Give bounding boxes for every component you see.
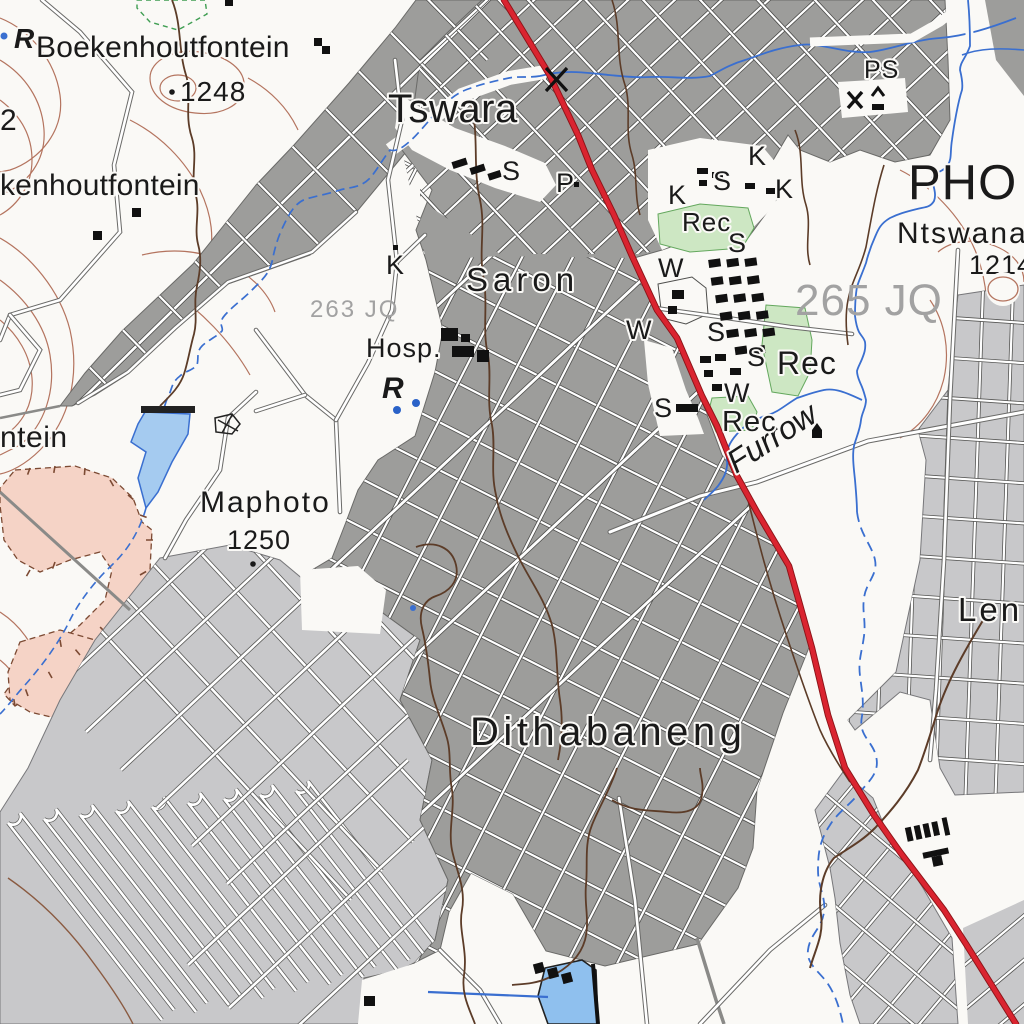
svg-text:Boekenhoutfontein: Boekenhoutfontein (0, 169, 200, 202)
svg-text:K: K (748, 141, 766, 171)
svg-text:Rec: Rec (682, 207, 731, 237)
svg-text:Saron: Saron (466, 261, 579, 298)
svg-text:K: K (668, 180, 686, 210)
svg-text:Maphoto: Maphoto (200, 486, 331, 519)
svg-text:R: R (382, 372, 404, 405)
svg-text:Len: Len (958, 591, 1022, 628)
svg-text:R: R (14, 23, 35, 54)
svg-text:S: S (747, 342, 765, 372)
svg-text:PHO: PHO (908, 156, 1017, 210)
svg-text:Dithabaneng: Dithabaneng (470, 710, 746, 754)
svg-text:ntein: ntein (0, 421, 68, 454)
svg-text:S: S (728, 228, 746, 258)
svg-text:263 JQ: 263 JQ (310, 296, 399, 323)
svg-text:K: K (775, 174, 793, 204)
svg-text:Rec: Rec (722, 406, 777, 438)
svg-text:S: S (502, 156, 520, 186)
svg-text:1248: 1248 (180, 76, 246, 107)
svg-text:Tswara: Tswara (388, 87, 518, 131)
svg-text:W: W (626, 315, 652, 345)
svg-text:S: S (713, 166, 731, 196)
svg-text:2: 2 (0, 104, 17, 137)
svg-text:S: S (707, 317, 725, 347)
svg-text:P: P (556, 168, 574, 198)
svg-text:265 JQ: 265 JQ (795, 276, 943, 325)
svg-text:PS: PS (864, 56, 899, 84)
svg-text:Rec: Rec (777, 345, 837, 381)
svg-text:W: W (658, 253, 684, 283)
svg-text:K: K (386, 250, 404, 280)
svg-text:S: S (654, 393, 672, 423)
svg-text:Hosp.: Hosp. (366, 333, 442, 363)
svg-text:W: W (724, 378, 750, 408)
svg-text:1250: 1250 (227, 525, 291, 555)
svg-text:Boekenhoutfontein: Boekenhoutfontein (36, 31, 290, 64)
svg-text:Ntswana: Ntswana (897, 217, 1024, 250)
